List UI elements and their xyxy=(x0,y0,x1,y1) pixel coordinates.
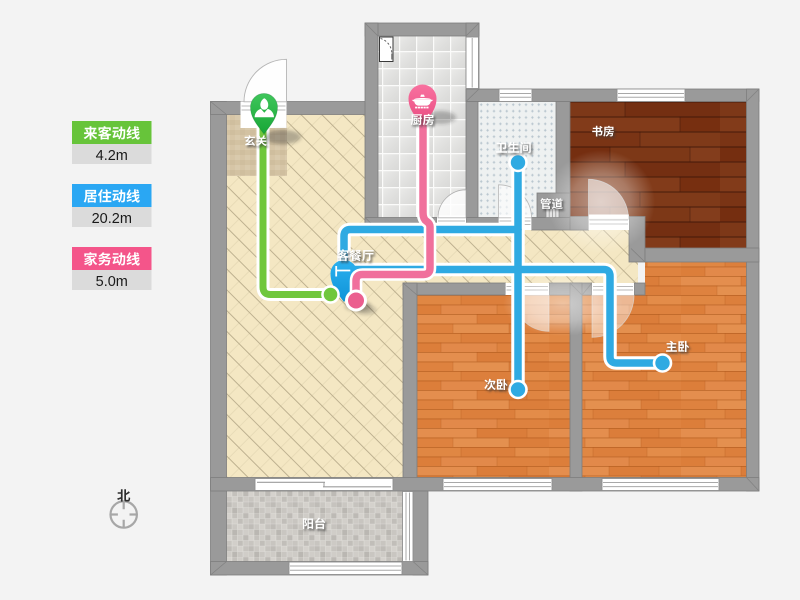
svg-text:5.0m: 5.0m xyxy=(96,274,128,290)
svg-text:20.2m: 20.2m xyxy=(92,211,132,227)
svg-text:4.2m: 4.2m xyxy=(96,148,128,164)
